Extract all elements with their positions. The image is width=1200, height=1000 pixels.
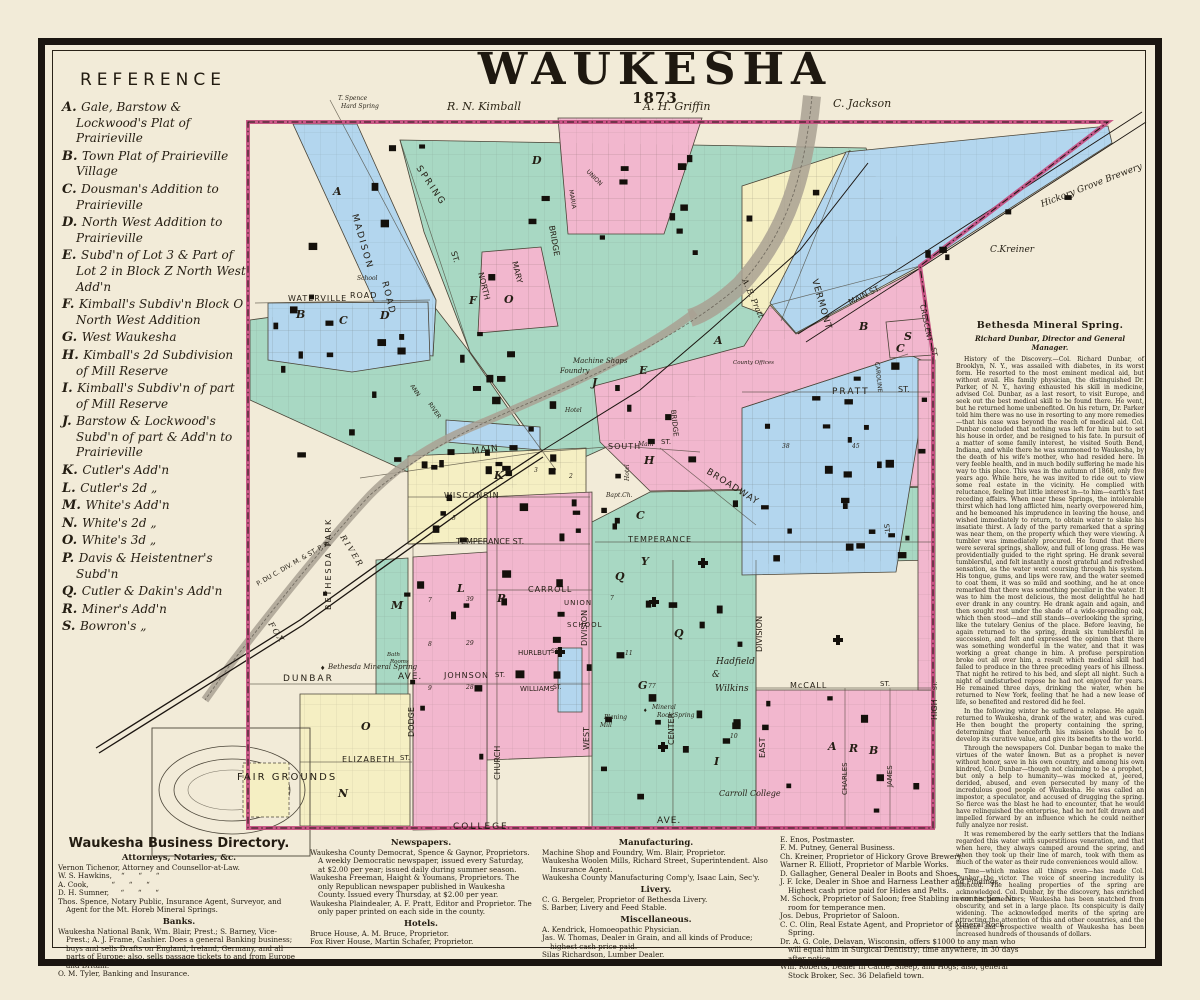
building-mark: [615, 518, 620, 524]
directory-entry: Jas. W. Thomas, Dealer in Grain, and all…: [542, 934, 770, 951]
building-mark: [399, 334, 404, 340]
building-mark: [349, 429, 355, 435]
lot-number: 39: [466, 596, 474, 603]
building-mark: [417, 581, 424, 588]
building-mark: [678, 163, 686, 170]
reference-item: A. Gale, Barstow & Lockwood's Plat of Pr…: [62, 100, 246, 147]
block-letter: O: [361, 720, 371, 733]
street-label: COLLEGE: [453, 822, 509, 832]
building-mark: [559, 533, 564, 541]
building-mark: [677, 229, 683, 234]
page-title: WAUKESHA: [380, 44, 930, 95]
building-mark: [281, 366, 285, 373]
building-mark: [542, 196, 550, 201]
building-mark: [439, 460, 444, 467]
building-mark: [733, 719, 740, 726]
block-letter: F: [468, 294, 478, 307]
street-label: ST.: [898, 385, 910, 394]
street-label: Bapt.Ch.: [605, 492, 633, 499]
street-label: TEMPERANCE ST.: [455, 537, 524, 546]
building-mark: [670, 213, 675, 220]
building-mark: [918, 449, 925, 454]
building-mark: [516, 670, 525, 678]
directory-section-heading: Attorneys, Notaries, &c.: [58, 853, 300, 863]
building-mark: [615, 385, 620, 391]
street-label: PRATT: [832, 387, 870, 397]
church-mark: [833, 635, 843, 645]
directory-section-heading: Livery.: [542, 885, 770, 895]
directory-entry: S. Barber, Livery and Feed Stable.: [542, 904, 770, 912]
building-mark: [615, 474, 621, 479]
building-mark: [886, 460, 894, 468]
building-mark: [420, 706, 425, 711]
street-label: HURLBUT: [518, 649, 552, 657]
street-label: FAIR GROUNDS: [237, 772, 337, 783]
street-label: JAMES: [886, 765, 894, 788]
building-mark: [397, 348, 405, 355]
building-mark: [309, 243, 318, 250]
reference-item: P. Davis & Heistentner's Subd'n: [62, 551, 246, 582]
street-label: ST.: [551, 648, 560, 655]
street-label: McCALL: [790, 681, 827, 690]
building-mark: [846, 544, 854, 551]
building-mark: [554, 671, 561, 678]
building-mark: [905, 536, 909, 541]
building-mark: [495, 462, 502, 466]
building-mark: [693, 250, 698, 255]
block-letter: Q: [674, 627, 684, 640]
street-label: ELIZABETH: [342, 755, 395, 764]
building-mark: [823, 424, 830, 428]
street-label: DODGE: [407, 707, 416, 737]
directory-section-heading: Miscellaneous.: [542, 915, 770, 925]
building-mark: [877, 462, 882, 469]
building-mark: [861, 715, 868, 723]
street-label: School: [357, 275, 378, 282]
block-letter: S: [904, 330, 912, 343]
reference-item: C. Dousman's Addition to Prairieville: [62, 182, 246, 213]
reference-item: Q. Cutler & Dakin's Add'n: [62, 584, 246, 600]
article-paragraph: In the following winter he suffered a re…: [956, 708, 1144, 743]
directory-entry: Waukesha County Democrat, Spence & Gayno…: [310, 849, 532, 874]
reference-item: F. Kimball's Subdiv'n Block O North West…: [62, 297, 246, 328]
street-label: SOUTH: [608, 442, 641, 451]
building-mark: [529, 427, 534, 432]
building-mark: [601, 767, 607, 772]
building-mark: [649, 694, 657, 702]
block-letter: O: [504, 293, 514, 306]
surveyor-name-right: C. Jackson: [833, 97, 891, 110]
block-letter: B: [868, 744, 878, 757]
lot-number: 28: [465, 684, 474, 691]
block-letter: H: [643, 454, 655, 467]
building-mark: [587, 664, 592, 671]
article-byline: Richard Dunbar, Director and General Man…: [956, 334, 1144, 352]
block-letter: R: [848, 742, 858, 755]
building-mark: [688, 456, 696, 462]
lot-number: 45: [851, 443, 860, 450]
reference-item: J. Barstow & Lockwood's Subd'n of part &…: [62, 414, 246, 461]
block-letter: D: [531, 154, 542, 167]
block-letter: G: [638, 679, 647, 692]
street-label: CENTER: [667, 712, 676, 745]
building-mark: [669, 602, 678, 608]
directory-entry: M. Schock, Proprietor of Saloon; free St…: [780, 895, 1030, 912]
building-mark: [297, 452, 306, 457]
street-label: Main: [637, 441, 654, 448]
reference-item: K. Cutler's Add'n: [62, 463, 246, 479]
reference-item: R. Miner's Add'n: [62, 602, 246, 618]
building-mark: [621, 166, 629, 171]
directory-title: Waukesha Business Directory.: [58, 836, 300, 851]
directory-entry: Silas Richardson, Lumber Dealer.: [542, 951, 770, 959]
block-letter: A: [713, 334, 723, 347]
building-mark: [787, 529, 791, 534]
map-sheet: T. SpenceHard SpringMADISONROADSPRINGST.…: [0, 0, 1200, 1000]
building-mark: [766, 701, 770, 707]
reference-item: B. Town Plat of Prairieville Village: [62, 149, 246, 180]
building-mark: [464, 603, 470, 607]
directory-entry: Waukesha Plaindealer, A. F. Pratt, Edito…: [310, 900, 532, 917]
street-label: C.Kreiner: [990, 245, 1035, 255]
block-letter: Y: [641, 555, 650, 568]
surveyor-name-left: R. N. Kimball: [447, 100, 521, 113]
reference-item: G. West Waukesha: [62, 330, 246, 346]
directory-entry: C. C. Olin, Real Estate Agent, and Propr…: [780, 921, 1030, 938]
directory-section-heading: Hotels.: [310, 919, 532, 929]
building-mark: [825, 466, 833, 474]
building-mark: [612, 523, 617, 529]
street-label: Machine Shops: [572, 357, 628, 365]
block-letter: C: [636, 509, 645, 522]
building-mark: [488, 274, 495, 280]
building-mark: [723, 738, 730, 743]
building-mark: [747, 215, 753, 221]
street-label: JOHNSON: [443, 671, 489, 680]
lot-number: 3: [534, 467, 538, 474]
street-label: Hotel: [564, 407, 582, 414]
street-label: CARROLL: [528, 585, 572, 594]
street-label: BETHESDA PARK: [324, 518, 333, 610]
building-mark: [848, 437, 852, 443]
street-label: Rooms: [389, 659, 409, 665]
building-mark: [505, 471, 511, 476]
street-label: RIVER: [338, 532, 366, 569]
building-mark: [460, 355, 465, 363]
building-mark: [619, 179, 627, 184]
lot-number: 9: [428, 685, 432, 692]
street-label: Hotel: [624, 464, 631, 482]
reference-panel: REFERENCE A. Gale, Barstow & Lockwood's …: [62, 70, 246, 637]
building-mark: [637, 794, 644, 800]
building-mark: [576, 528, 581, 532]
street-label: ROAD: [350, 291, 377, 300]
building-mark: [601, 508, 607, 513]
block-letter: C: [339, 314, 348, 327]
street-label: AVE.: [398, 672, 422, 682]
reference-item: O. White's 3d „: [62, 533, 246, 549]
street-label: CHARLES: [841, 762, 849, 795]
street-label: T. Spence: [338, 95, 368, 102]
street-label: Mill: [599, 722, 612, 729]
directory-entry: Thos. Spence, Notary Public, Insurance A…: [58, 898, 300, 915]
building-mark: [761, 505, 769, 509]
block-letter: M: [390, 599, 404, 612]
directory-section-heading: Manufacturing.: [542, 838, 770, 848]
building-mark: [812, 396, 820, 400]
building-mark: [492, 397, 500, 404]
article-paragraph: Through the newspapers Col. Dunbar began…: [956, 745, 1144, 829]
building-mark: [877, 774, 884, 781]
building-mark: [550, 401, 557, 409]
building-mark: [687, 155, 692, 162]
reference-item: D. North West Addition to Prairieville: [62, 215, 246, 246]
directory-entry: Waukesha National Bank, Wm. Blair, Prest…: [58, 928, 300, 970]
lot-number: 7: [428, 597, 432, 604]
block-letter: B: [858, 320, 868, 333]
lot-number: 77: [648, 683, 656, 690]
building-mark: [377, 339, 386, 346]
street-label: UNION: [564, 599, 592, 607]
building-mark: [617, 652, 625, 658]
street-label: DIVISION: [755, 616, 764, 652]
surveyor-name-center: A. H. Griffin: [643, 100, 710, 113]
street-label: &: [712, 670, 720, 680]
street-label: Foundry: [559, 367, 591, 375]
directory-section-heading: Newspapers.: [310, 838, 532, 848]
building-mark: [479, 754, 483, 760]
street-label: ST.: [880, 680, 890, 688]
building-mark: [627, 405, 631, 412]
lot-number: 7: [610, 595, 614, 602]
directory-entry: Waukesha County Manufacturing Comp'y, Is…: [542, 874, 770, 882]
building-mark: [372, 183, 379, 191]
building-mark: [874, 809, 880, 813]
block-letter: P: [496, 592, 506, 605]
building-mark: [733, 500, 738, 507]
building-mark: [765, 424, 770, 429]
building-mark: [389, 145, 396, 151]
street-label: EAST: [758, 737, 767, 758]
building-mark: [856, 543, 865, 548]
street-label: ♦: [643, 708, 647, 714]
building-mark: [717, 606, 723, 614]
building-mark: [762, 725, 769, 730]
street-label: Hard Spring: [340, 103, 379, 110]
lot-number: 5: [452, 515, 456, 522]
street-label: HIGH: [930, 699, 939, 720]
directory-entry: Wm. Roberts, Dealer in Cattle, Sheep, an…: [780, 963, 1030, 980]
building-mark: [486, 466, 492, 474]
reference-item: I. Kimball's Subdiv'n of part of Mill Re…: [62, 381, 246, 412]
reference-item: H. Kimball's 2d Subdivision of Mill Rese…: [62, 348, 246, 379]
block-letter: C: [896, 342, 905, 355]
directory-entry: O. M. Tyler, Banking and Insurance.: [58, 970, 300, 978]
block-letter: A: [332, 185, 342, 198]
building-mark: [572, 499, 577, 506]
street-label: ST.: [882, 523, 891, 534]
street-label: DIVISION: [580, 610, 589, 646]
building-mark: [327, 353, 333, 358]
building-mark: [404, 593, 410, 597]
directory-entry: Fox River House, Martin Schafer, Proprie…: [310, 938, 532, 946]
building-mark: [697, 710, 703, 718]
street-label: Hadfield: [715, 657, 755, 667]
reference-item: N. White's 2d „: [62, 516, 246, 532]
building-mark: [497, 376, 505, 382]
reference-heading: REFERENCE: [80, 70, 246, 90]
building-mark: [813, 190, 819, 196]
building-mark: [502, 570, 511, 577]
building-mark: [939, 247, 947, 253]
lot-number: 11: [625, 650, 633, 657]
directory-column: Newspapers.Waukesha County Democrat, Spe…: [310, 836, 532, 980]
block-letter: K: [493, 469, 504, 482]
reference-item: L. Cutler's 2d „: [62, 481, 246, 497]
building-mark: [507, 351, 515, 357]
lot-grid-overlay: [558, 648, 582, 712]
block-letter: E: [638, 364, 648, 377]
lot-number: 2: [568, 473, 573, 480]
building-mark: [422, 461, 428, 468]
building-mark: [891, 362, 899, 369]
building-mark: [273, 323, 278, 330]
building-mark: [477, 332, 483, 336]
street-label: WATERVILLE: [288, 294, 347, 303]
business-directory: Waukesha Business Directory.Attorneys, N…: [58, 836, 990, 980]
directory-entry: Waukesha Woolen Mills, Richard Street, S…: [542, 857, 770, 874]
lot-number: 29: [465, 640, 474, 647]
building-mark: [440, 511, 445, 516]
building-mark: [509, 445, 517, 450]
building-mark: [925, 250, 930, 258]
street-label: ST.: [495, 671, 505, 679]
building-mark: [433, 525, 440, 532]
block-letter: Q: [615, 570, 625, 583]
building-mark: [922, 398, 927, 402]
building-mark: [869, 529, 876, 534]
street-label: Planing: [603, 714, 627, 721]
building-mark: [841, 498, 849, 503]
building-mark: [573, 511, 580, 515]
block-letter: L: [456, 582, 465, 595]
building-mark: [898, 552, 907, 558]
street-label: County Offices: [733, 360, 774, 366]
building-mark: [325, 321, 333, 326]
building-mark: [844, 399, 852, 404]
street-label: ST.: [400, 754, 410, 762]
building-mark: [945, 254, 949, 260]
building-mark: [474, 685, 482, 691]
block-letter: A: [827, 740, 837, 753]
building-mark: [854, 377, 861, 381]
building-mark: [786, 784, 791, 789]
block-letter: J: [590, 376, 598, 389]
street-label: Mineral: [651, 704, 676, 711]
lot-number: 8: [428, 641, 432, 648]
building-mark: [372, 391, 376, 397]
building-mark: [447, 449, 454, 455]
lot-number: 38: [782, 443, 790, 450]
street-label: ♦: [320, 665, 325, 672]
building-mark: [520, 503, 528, 511]
building-mark: [773, 555, 780, 561]
block-letter: D: [379, 309, 390, 322]
street-label: Wilkins: [715, 684, 749, 694]
building-mark: [549, 468, 556, 474]
lot-number: 10: [730, 733, 738, 740]
street-label: WILLIAMS: [520, 685, 555, 693]
building-mark: [864, 425, 869, 430]
directory-column: Manufacturing.Machine Shop and Foundry, …: [542, 836, 770, 980]
building-mark: [888, 533, 895, 537]
block-letter: B: [295, 308, 305, 321]
directory-column: Waukesha Business Directory.Attorneys, N…: [58, 836, 300, 980]
building-mark: [529, 219, 537, 224]
building-mark: [431, 465, 437, 470]
street-label: ST.: [932, 681, 939, 690]
street-label: ST.: [661, 438, 671, 446]
building-mark: [550, 454, 556, 461]
street-label: Bath: [386, 652, 401, 658]
street-label: CHURCH: [493, 746, 502, 780]
directory-section-heading: Banks.: [58, 917, 300, 927]
street-label: ST.: [553, 684, 562, 691]
building-mark: [419, 144, 425, 148]
block-letter: I: [713, 755, 720, 768]
building-mark: [700, 622, 705, 629]
block-letter: N: [337, 787, 349, 800]
building-mark: [683, 746, 689, 753]
street-label: AVE.: [657, 816, 681, 826]
directory-column: E. Enos, Postmaster.F. M. Putney, Genera…: [780, 836, 1030, 980]
building-mark: [558, 612, 565, 617]
building-mark: [1005, 209, 1011, 214]
street-label: TEMPERANCE: [627, 535, 692, 544]
building-mark: [913, 783, 919, 789]
reference-list: A. Gale, Barstow & Lockwood's Plat of Pr…: [62, 100, 246, 635]
street-label: Carroll College: [719, 789, 781, 798]
building-mark: [827, 696, 832, 700]
directory-entry: Waukesha Freeman, Haight & Youmans, Prop…: [310, 874, 532, 899]
building-mark: [381, 220, 389, 228]
street-label: WISCONSIN: [444, 491, 500, 500]
street-label: WEST: [582, 727, 591, 750]
building-mark: [600, 235, 605, 239]
article-title: Bethesda Mineral Spring.: [956, 320, 1144, 331]
building-mark: [473, 386, 481, 391]
building-mark: [486, 375, 493, 383]
reference-item: E. Subd'n of Lot 3 & Part of Lot 2 in Bl…: [62, 248, 246, 295]
reference-item: M. White's Add'n: [62, 498, 246, 514]
building-mark: [843, 503, 848, 509]
lot-grid-overlay: [756, 690, 935, 828]
building-mark: [680, 204, 688, 210]
building-mark: [394, 457, 401, 462]
building-mark: [655, 720, 661, 725]
building-mark: [844, 471, 852, 477]
reference-item: S. Bowron's „: [62, 619, 246, 635]
article-paragraph: History of the Discovery.—Col. Richard D…: [956, 356, 1144, 706]
building-mark: [553, 637, 561, 643]
building-mark: [451, 612, 456, 620]
building-mark: [738, 642, 743, 647]
building-mark: [299, 351, 303, 358]
directory-entry: J. F. Icke, Dealer in Shoe and Harness L…: [780, 878, 1030, 895]
directory-entry: Dr. A. G. Cole, Delavan, Wisconsin, offe…: [780, 938, 1030, 963]
street-label: DUNBAR: [283, 674, 334, 684]
